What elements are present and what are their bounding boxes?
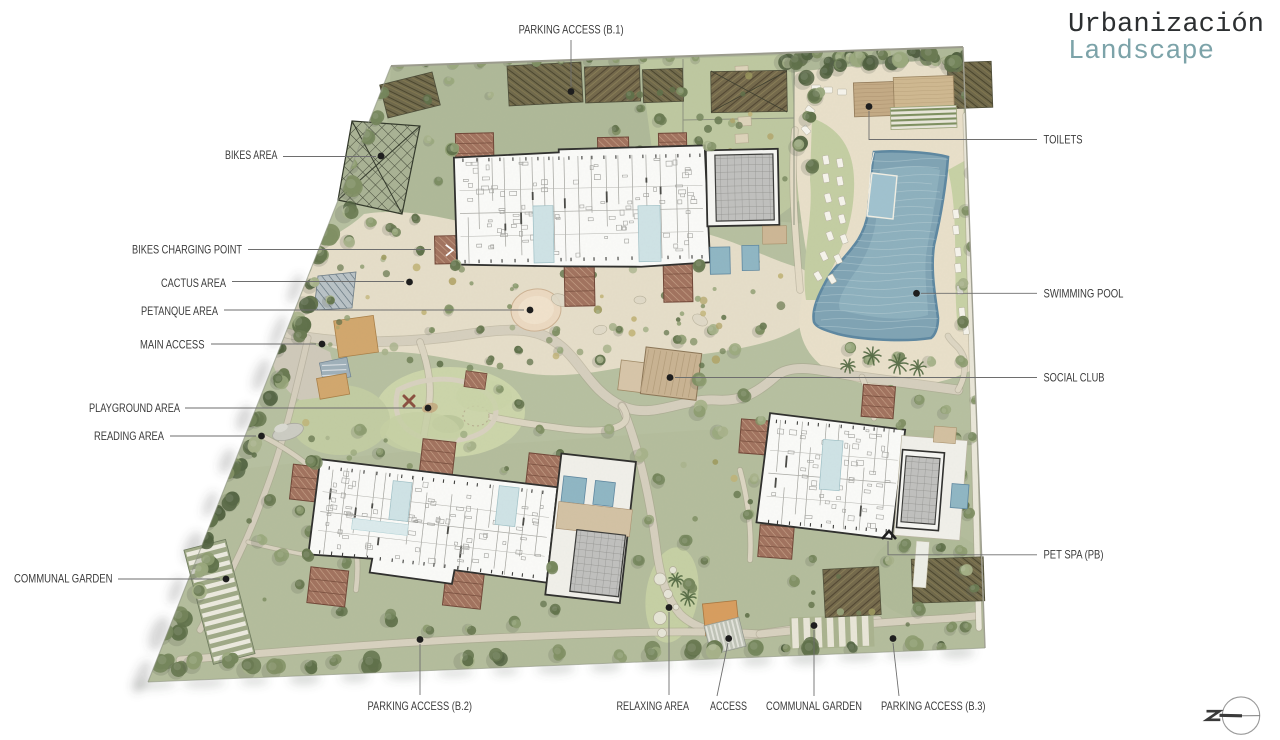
svg-text:TOILETS: TOILETS [1044,132,1083,146]
svg-text:PET SPA (PB): PET SPA (PB) [1044,547,1104,561]
svg-text:PLAYGROUND AREA: PLAYGROUND AREA [89,401,180,415]
svg-text:CACTUS AREA: CACTUS AREA [161,276,226,290]
svg-text:PARKING ACCESS (B.3): PARKING ACCESS (B.3) [881,699,986,713]
svg-text:READING AREA: READING AREA [94,429,164,443]
svg-text:Urbanización: Urbanización [1068,10,1264,40]
svg-text:PARKING ACCESS (B.2): PARKING ACCESS (B.2) [368,699,473,713]
svg-text:PETANQUE AREA: PETANQUE AREA [141,304,218,318]
svg-text:BIKES AREA: BIKES AREA [225,148,278,162]
svg-text:ACCESS: ACCESS [710,699,747,713]
svg-text:COMMUNAL GARDEN: COMMUNAL GARDEN [14,572,113,586]
svg-text:Landscape: Landscape [1068,37,1214,67]
svg-text:SWIMMING POOL: SWIMMING POOL [1044,286,1124,300]
svg-text:PARKING ACCESS (B.1): PARKING ACCESS (B.1) [519,22,624,36]
svg-text:RELAXING AREA: RELAXING AREA [617,699,690,713]
svg-text:SOCIAL CLUB: SOCIAL CLUB [1044,370,1105,384]
svg-text:MAIN ACCESS: MAIN ACCESS [140,337,205,351]
svg-text:COMMUNAL GARDEN: COMMUNAL GARDEN [766,699,862,713]
svg-text:BIKES CHARGING POINT: BIKES CHARGING POINT [132,242,242,256]
